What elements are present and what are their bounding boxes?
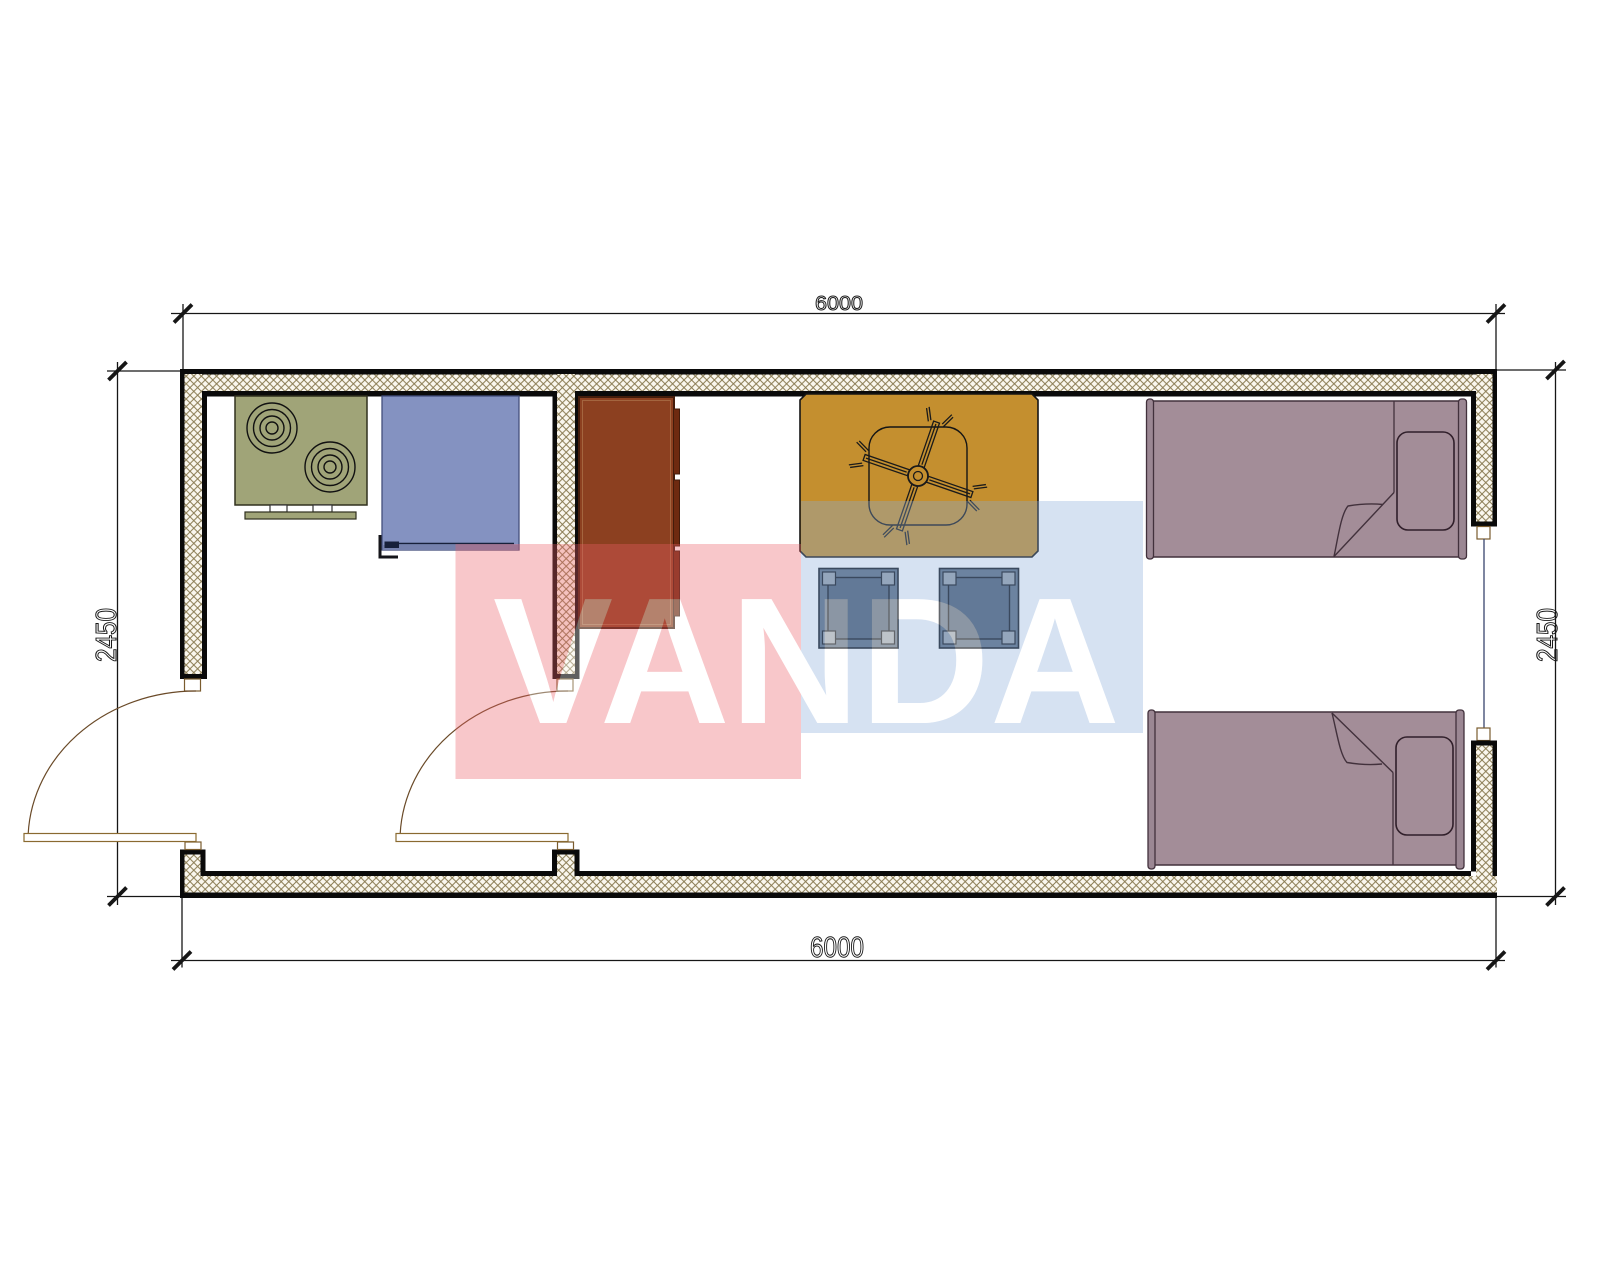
svg-text:VANDA: VANDA [493, 561, 1120, 762]
svg-text:6000: 6000 [815, 292, 863, 315]
svg-text:2450: 2450 [91, 608, 123, 662]
svg-text:6000: 6000 [810, 932, 864, 964]
svg-text:2450: 2450 [1532, 608, 1564, 662]
